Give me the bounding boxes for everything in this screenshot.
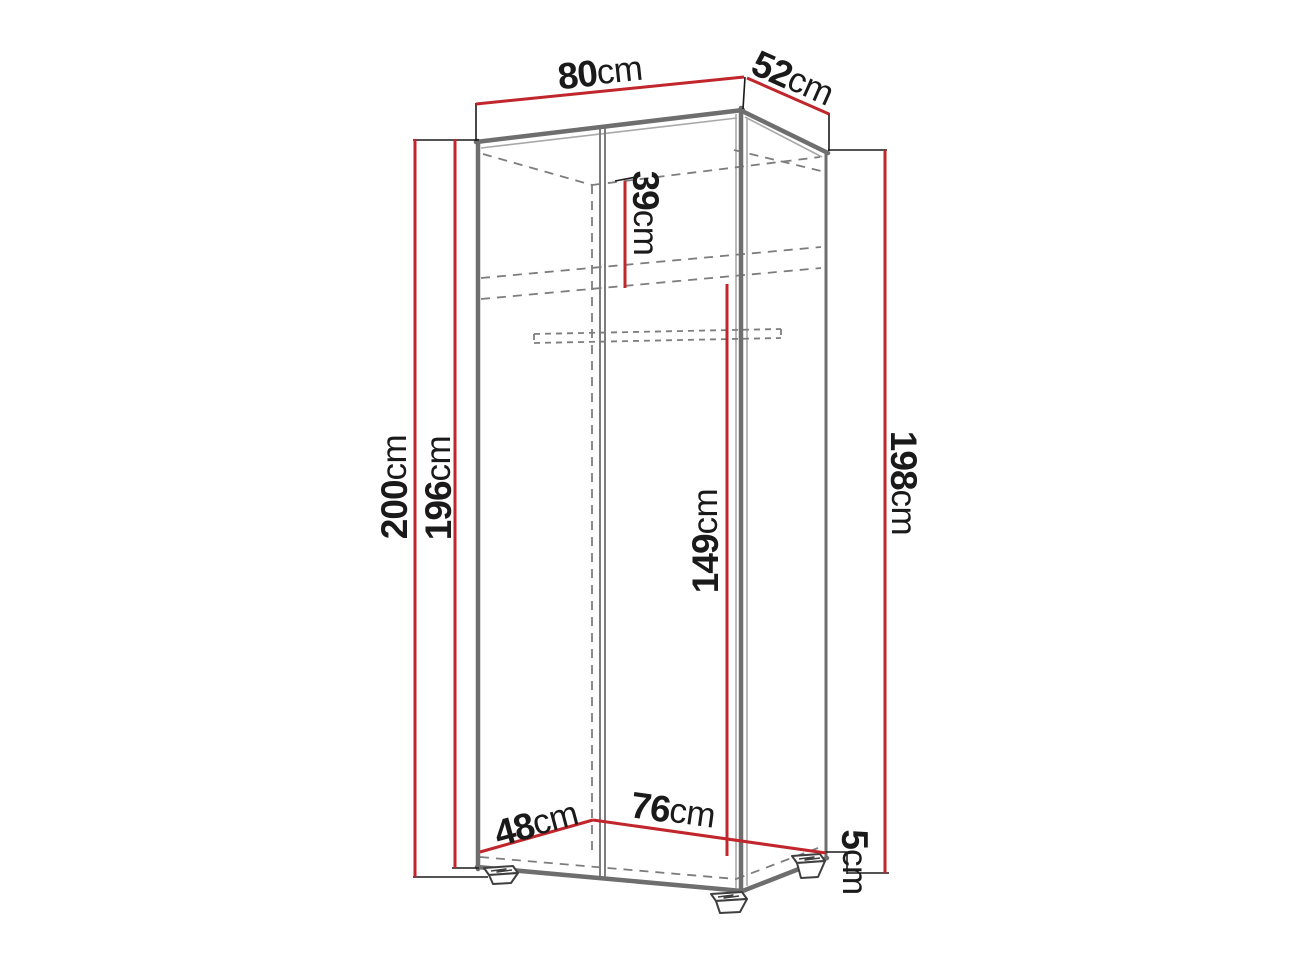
diagram-canvas: 80cm 52cm 200cm 196cm 198cm 39cm 149cm 4… <box>0 0 1289 967</box>
dim-label-height-total: 200cm <box>374 435 415 539</box>
interior-dashed-lines <box>480 150 821 879</box>
foot-front-right-body <box>716 899 747 913</box>
wardrobe-dimension-diagram: 80cm 52cm 200cm 196cm 198cm 39cm 149cm 4… <box>0 0 1289 967</box>
top-side-edge <box>740 110 828 153</box>
rail-top-dashed <box>534 329 781 334</box>
top-inner-edge <box>481 118 737 148</box>
dim-label-height-right: 198cm <box>884 431 925 535</box>
bottom-interior-dashed <box>480 857 736 879</box>
dim-label-inner-depth: 48cm <box>490 792 583 854</box>
dim-label-feet-height: 5cm <box>835 829 876 894</box>
dim-label-top-section: 39cm <box>626 171 667 256</box>
top-right-inner-edge <box>745 117 822 157</box>
top-front-edge <box>476 110 743 142</box>
ext-top-apex <box>743 77 745 109</box>
hanging-rail <box>534 329 781 343</box>
dim-label-hanging-space: 149cm <box>685 489 726 593</box>
rail-bottom-dashed <box>534 338 781 343</box>
center-divider <box>600 127 605 880</box>
top-interior-left-dashed <box>483 154 592 185</box>
foot-back-right-body <box>797 861 825 878</box>
dim-label-top-depth: 52cm <box>746 42 840 114</box>
foot-front-left-body <box>489 873 518 884</box>
dim-label-height-body: 196cm <box>418 436 459 540</box>
